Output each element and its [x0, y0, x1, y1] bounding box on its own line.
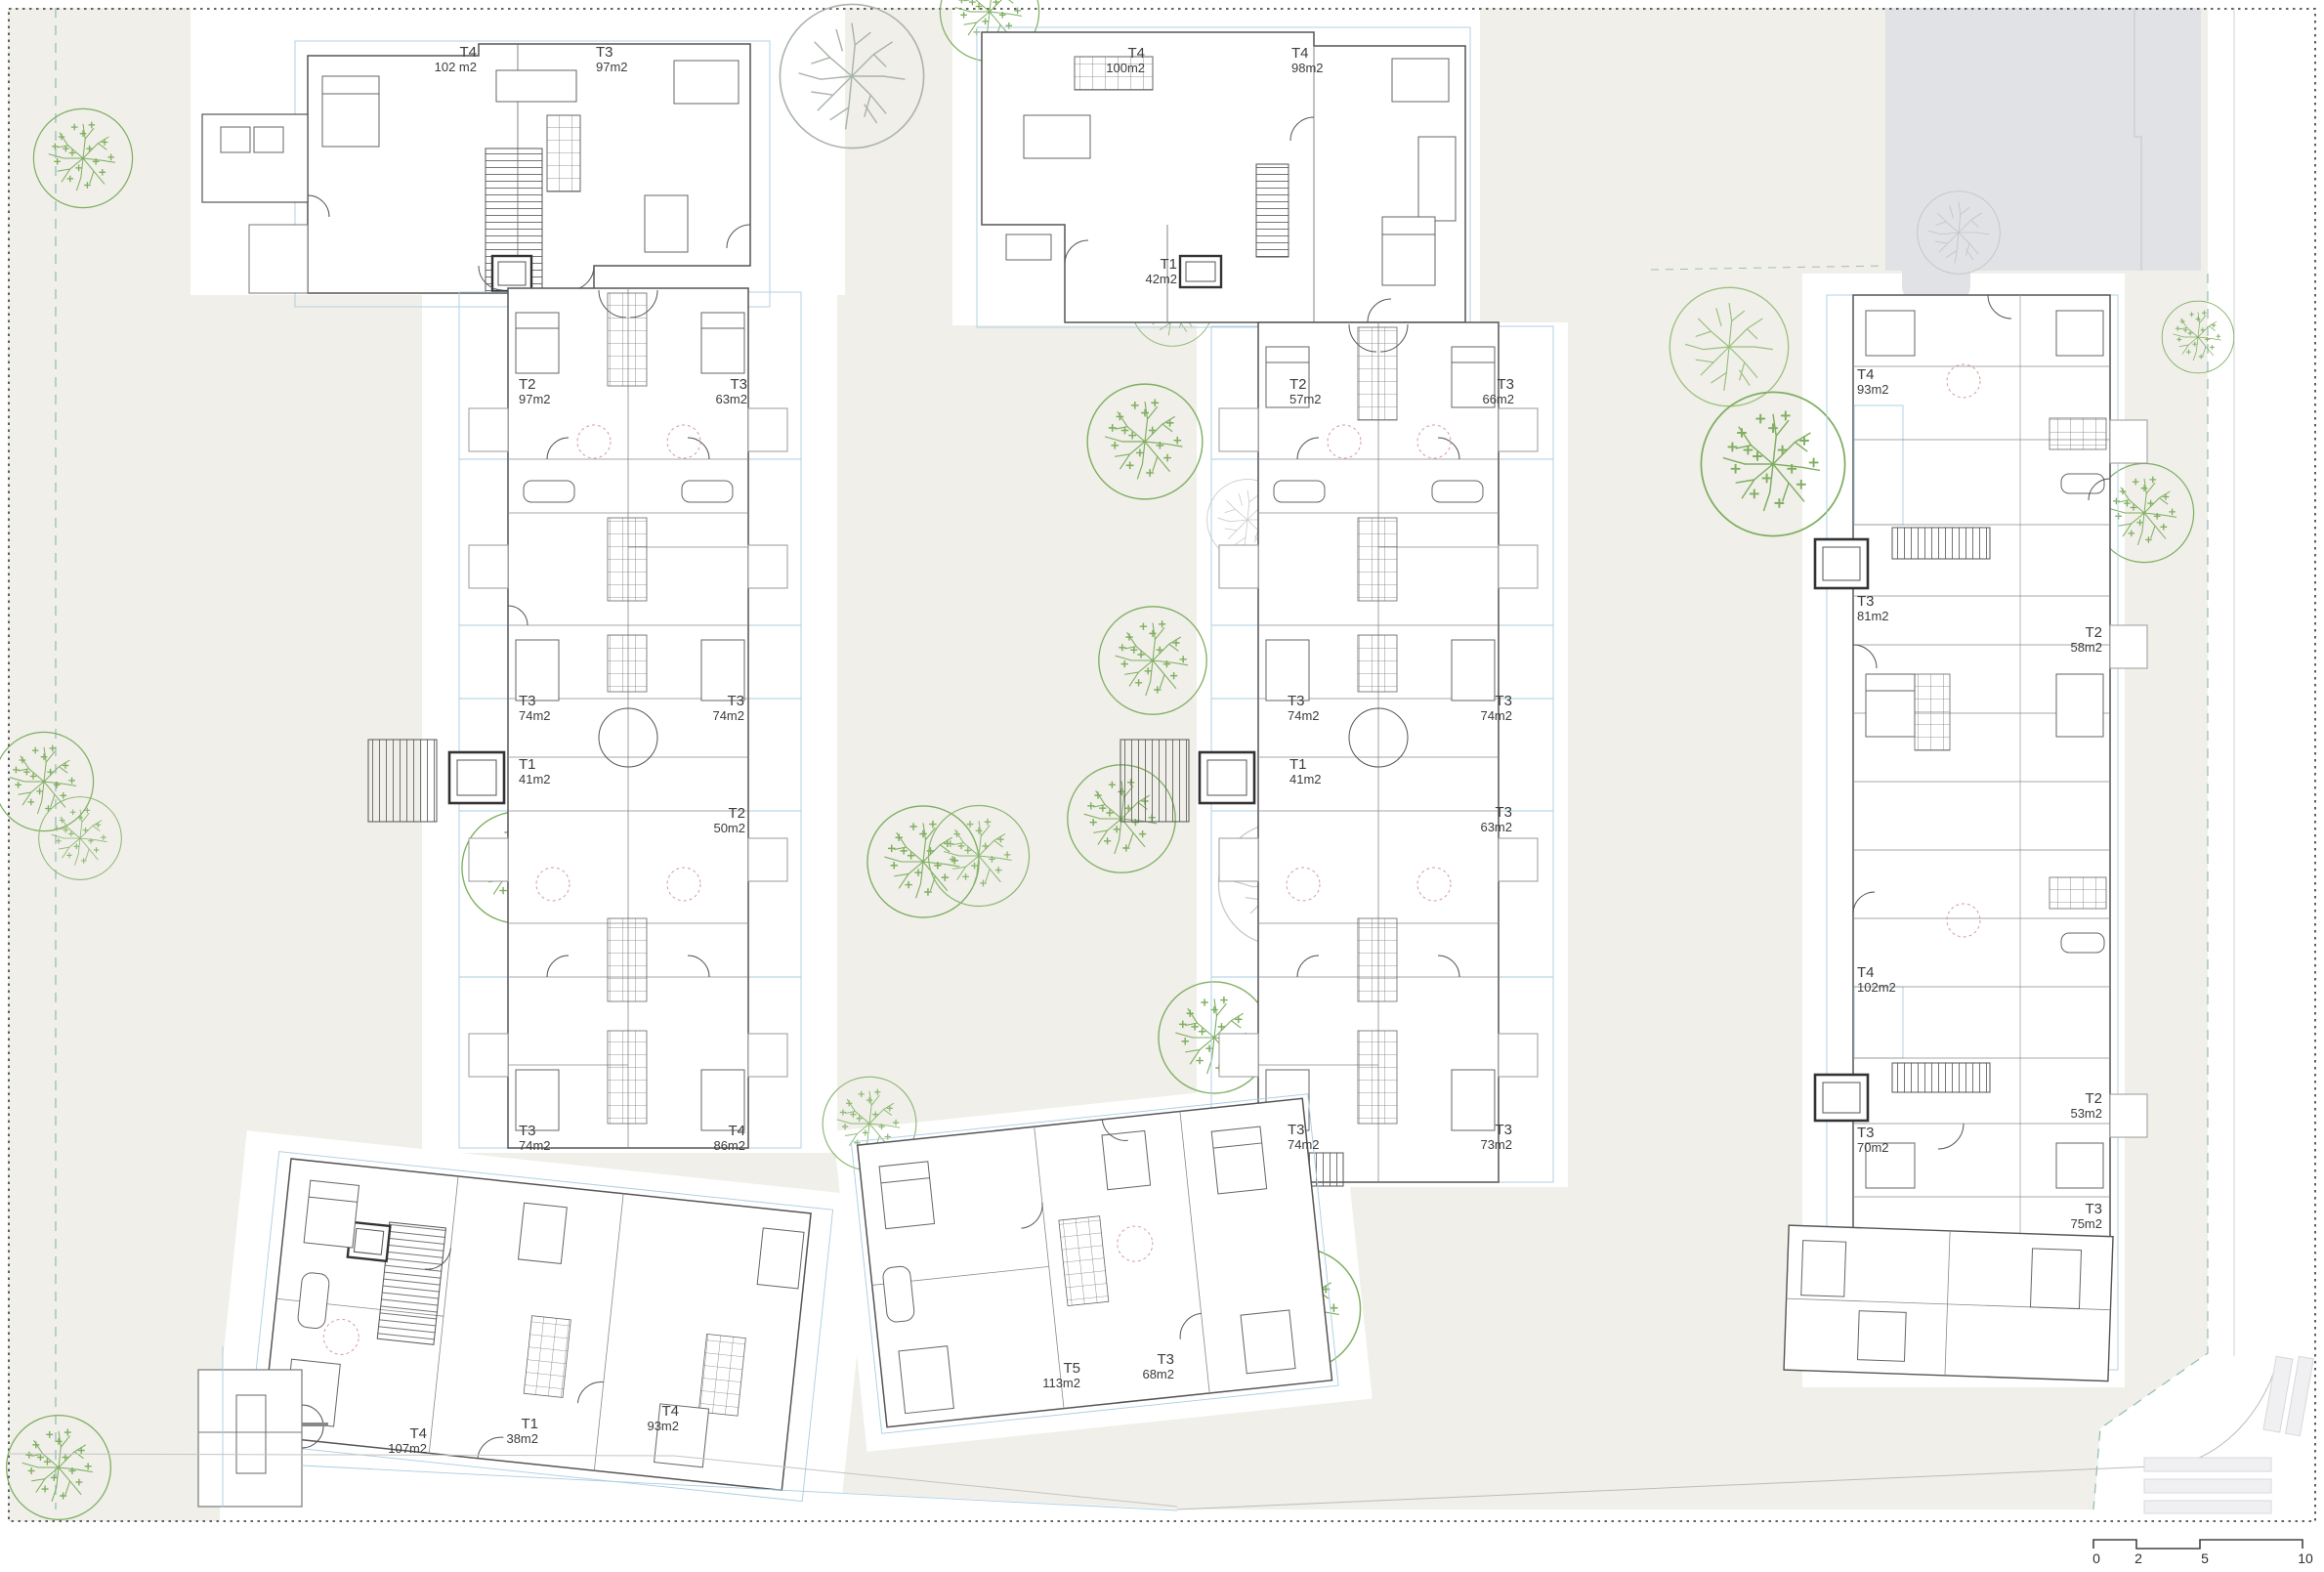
unit-type: T3: [1857, 1126, 1951, 1141]
unit-area: 70m2: [1857, 1141, 1951, 1156]
unit-label: T4102m2: [1857, 965, 1951, 996]
scale-tick-0: 0: [2092, 1551, 2100, 1566]
unit-label: T141m2: [1289, 757, 1383, 787]
unit-label: T498m2: [1291, 46, 1385, 76]
scale-tick-5: 5: [2201, 1551, 2209, 1566]
unit-area: 68m2: [1080, 1368, 1174, 1382]
unit-type: T3: [2008, 1202, 2102, 1217]
unit-label: T142m2: [1083, 257, 1177, 287]
unit-label: T375m2: [2008, 1202, 2102, 1232]
unit-type: T1: [1289, 757, 1383, 773]
unit-type: T1: [519, 757, 613, 773]
unit-area: 66m2: [1420, 393, 1514, 407]
unit-type: T3: [1420, 377, 1514, 393]
existing-building-mass: [1885, 8, 2201, 300]
unit-label: T4100m2: [1051, 46, 1145, 76]
unit-label: T493m2: [1857, 367, 1951, 398]
unit-area: 74m2: [1288, 709, 1381, 724]
unit-type: T2: [519, 377, 613, 393]
unit-label: T374m2: [651, 694, 744, 724]
unit-type: T4: [333, 1426, 427, 1442]
unit-label: T257m2: [1289, 377, 1383, 407]
unit-area: 41m2: [519, 773, 613, 787]
unit-area: 86m2: [652, 1139, 745, 1154]
unit-type: T2: [2008, 1091, 2102, 1107]
unit-type: T3: [1288, 1123, 1381, 1138]
unit-label: T373m2: [1418, 1123, 1512, 1153]
unit-type: T3: [596, 45, 690, 61]
unit-label: T368m2: [1080, 1352, 1174, 1382]
unit-label: T297m2: [519, 377, 613, 407]
stair-core: [1892, 528, 1990, 559]
unit-area: 107m2: [333, 1442, 427, 1457]
unit-label: T253m2: [2008, 1091, 2102, 1122]
unit-label: T363m2: [1418, 805, 1512, 835]
stair-core: [1120, 740, 1189, 822]
unit-label: T374m2: [1418, 694, 1512, 724]
unit-area: 57m2: [1289, 393, 1383, 407]
unit-area: 53m2: [2008, 1107, 2102, 1122]
unit-label: T141m2: [519, 757, 613, 787]
unit-label: T374m2: [1288, 1123, 1381, 1153]
site-plan-drawing: [0, 0, 2324, 1572]
unit-label: T363m2: [654, 377, 747, 407]
unit-area: 74m2: [519, 1139, 613, 1154]
unit-area: 63m2: [1418, 821, 1512, 835]
unit-label: T5113m2: [987, 1361, 1080, 1391]
unit-type: T2: [2008, 625, 2102, 641]
unit-label: T138m2: [444, 1417, 538, 1447]
kitchens: [1059, 1216, 1109, 1306]
building-bottommiddle: [851, 1094, 1338, 1433]
unit-type: T2: [1289, 377, 1383, 393]
unit-type: T4: [585, 1404, 679, 1420]
unit-type: T3: [1418, 805, 1512, 821]
unit-area: 100m2: [1051, 62, 1145, 76]
unit-label: T381m2: [1857, 594, 1951, 624]
unit-label: T4107m2: [333, 1426, 427, 1457]
stair-core: [1892, 1063, 1990, 1092]
unit-type: T3: [1418, 1123, 1512, 1138]
unit-area: 98m2: [1291, 62, 1385, 76]
unit-type: T3: [1857, 594, 1951, 610]
unit-area: 41m2: [1289, 773, 1383, 787]
unit-label: T250m2: [652, 806, 745, 836]
unit-area: 74m2: [1418, 709, 1512, 724]
scale-tick-10: 10: [2298, 1551, 2313, 1566]
unit-type: T3: [1288, 694, 1381, 709]
unit-label: T374m2: [519, 1124, 613, 1154]
unit-area: 97m2: [519, 393, 613, 407]
unit-type: T3: [1080, 1352, 1174, 1368]
unit-area: 93m2: [585, 1420, 679, 1434]
unit-type: T1: [1083, 257, 1177, 273]
unit-area: 58m2: [2008, 641, 2102, 656]
unit-area: 42m2: [1083, 273, 1177, 287]
unit-label: T366m2: [1420, 377, 1514, 407]
scale-tick-2: 2: [2134, 1551, 2142, 1566]
unit-type: T4: [1857, 965, 1951, 981]
unit-label: T374m2: [1288, 694, 1381, 724]
unit-area: 74m2: [519, 709, 613, 724]
unit-area: 102m2: [1857, 981, 1951, 996]
unit-area: 74m2: [1288, 1138, 1381, 1153]
unit-label: T493m2: [585, 1404, 679, 1434]
unit-type: T4: [383, 45, 477, 61]
unit-type: T1: [444, 1417, 538, 1432]
unit-label: T370m2: [1857, 1126, 1951, 1156]
unit-type: T3: [1418, 694, 1512, 709]
site-plan-canvas: T4102 m2 T397m2 T4100m2 T498m2 T142m2 T2…: [0, 0, 2324, 1572]
unit-area: 38m2: [444, 1432, 538, 1447]
unit-area: 113m2: [987, 1377, 1080, 1391]
unit-label: T258m2: [2008, 625, 2102, 656]
unit-type: T3: [651, 694, 744, 709]
unit-area: 74m2: [651, 709, 744, 724]
unit-type: T4: [1051, 46, 1145, 62]
unit-area: 75m2: [2008, 1217, 2102, 1232]
unit-type: T3: [519, 694, 613, 709]
unit-type: T5: [987, 1361, 1080, 1377]
unit-type: T4: [1291, 46, 1385, 62]
unit-area: 50m2: [652, 822, 745, 836]
unit-type: T2: [652, 806, 745, 822]
stair-core: [368, 740, 437, 822]
unit-area: 93m2: [1857, 383, 1951, 398]
unit-label: T374m2: [519, 694, 613, 724]
unit-area: 73m2: [1418, 1138, 1512, 1153]
unit-type: T4: [652, 1124, 745, 1139]
unit-area: 97m2: [596, 61, 690, 75]
unit-label: T4102 m2: [383, 45, 477, 75]
building-right-annex: [1784, 1225, 2113, 1381]
unit-label: T486m2: [652, 1124, 745, 1154]
unit-type: T3: [654, 377, 747, 393]
unit-area: 102 m2: [383, 61, 477, 75]
unit-type: T4: [1857, 367, 1951, 383]
unit-area: 81m2: [1857, 610, 1951, 624]
unit-type: T3: [519, 1124, 613, 1139]
unit-area: 63m2: [654, 393, 747, 407]
unit-label: T397m2: [596, 45, 690, 75]
